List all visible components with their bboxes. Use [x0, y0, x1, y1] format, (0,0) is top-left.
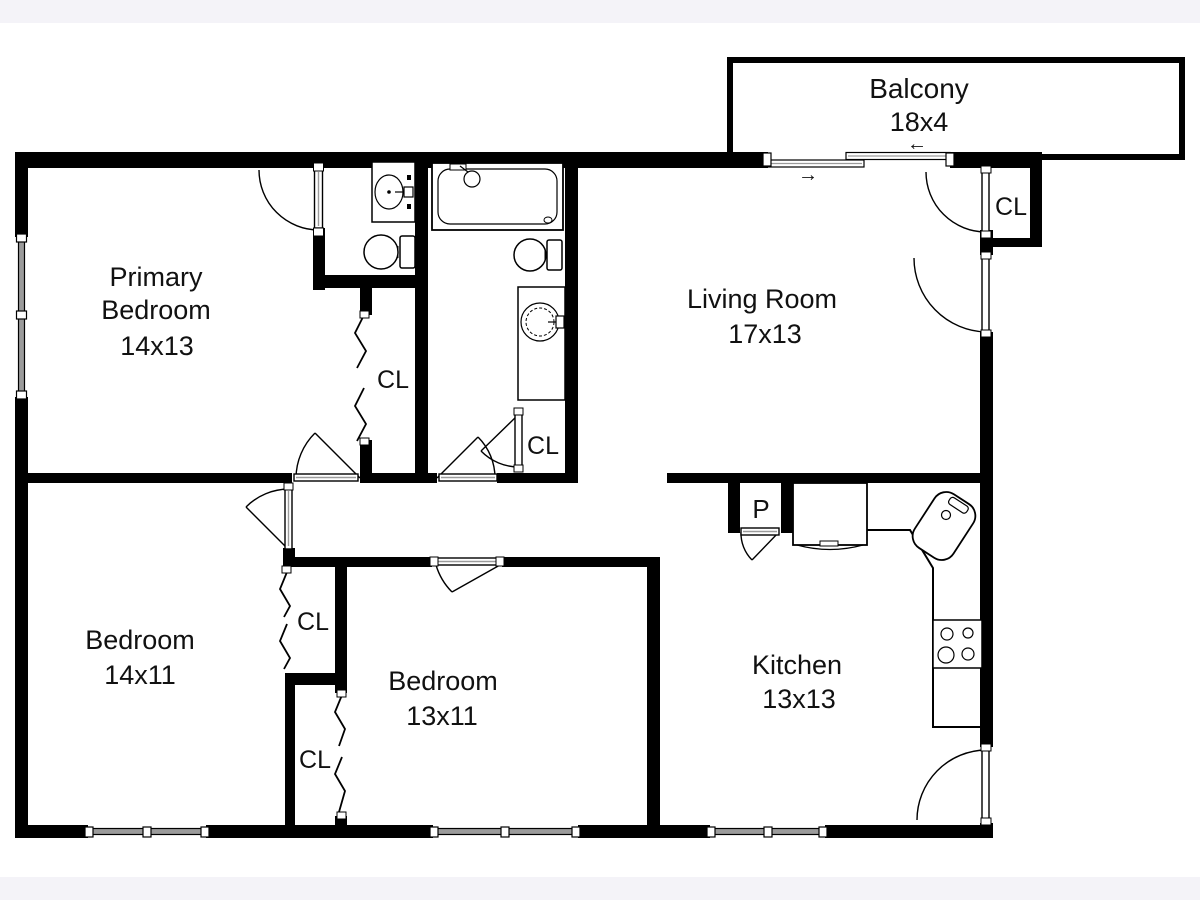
ensuite-toilet	[364, 235, 415, 269]
closet-label-hall: CL	[377, 366, 409, 394]
room-dimensions-balcony: 18x4	[890, 107, 949, 137]
bathtub	[432, 163, 563, 230]
room-label-kitchen: Kitchen	[752, 650, 842, 680]
window-primary-bedroom	[16, 234, 27, 399]
ensuite-vanity-sink	[372, 162, 415, 222]
closet-label-lower: CL	[299, 746, 331, 774]
window-bedroom-left	[85, 826, 209, 837]
closet-label-bathroom: CL	[527, 432, 559, 460]
room-label-primary-bedroom-line2: Bedroom	[101, 295, 211, 325]
floor-plan: ← →	[0, 0, 1200, 900]
refrigerator	[793, 483, 867, 550]
room-label-bedroom-middle: Bedroom	[388, 666, 498, 696]
room-label-balcony: Balcony	[869, 73, 969, 104]
room-label-bedroom-left: Bedroom	[85, 625, 195, 655]
room-label-primary-bedroom-line1: Primary	[110, 262, 203, 292]
window-bedroom-middle	[430, 826, 580, 837]
closet-label-living-room: CL	[995, 193, 1027, 221]
closet-label-upper: CL	[297, 608, 329, 636]
room-label-living-room: Living Room	[687, 284, 837, 314]
pantry-label: P	[752, 494, 769, 524]
room-dimensions-primary-bedroom: 14x13	[120, 331, 194, 361]
slide-right-arrow-icon: →	[798, 164, 818, 186]
room-dimensions-bedroom-middle: 13x11	[406, 701, 478, 731]
floor-plan-drawing: ← →	[0, 0, 1200, 900]
hall-vanity-sink	[518, 287, 565, 400]
page-band-top	[0, 0, 1200, 23]
plan-background	[0, 0, 1200, 900]
page-band-bottom	[0, 877, 1200, 900]
room-dimensions-bedroom-left: 14x11	[104, 660, 176, 690]
room-dimensions-living-room: 17x13	[728, 319, 802, 349]
room-dimensions-kitchen: 13x13	[762, 684, 836, 714]
stove	[933, 620, 982, 668]
window-kitchen	[707, 826, 827, 837]
hall-toilet	[514, 239, 562, 271]
